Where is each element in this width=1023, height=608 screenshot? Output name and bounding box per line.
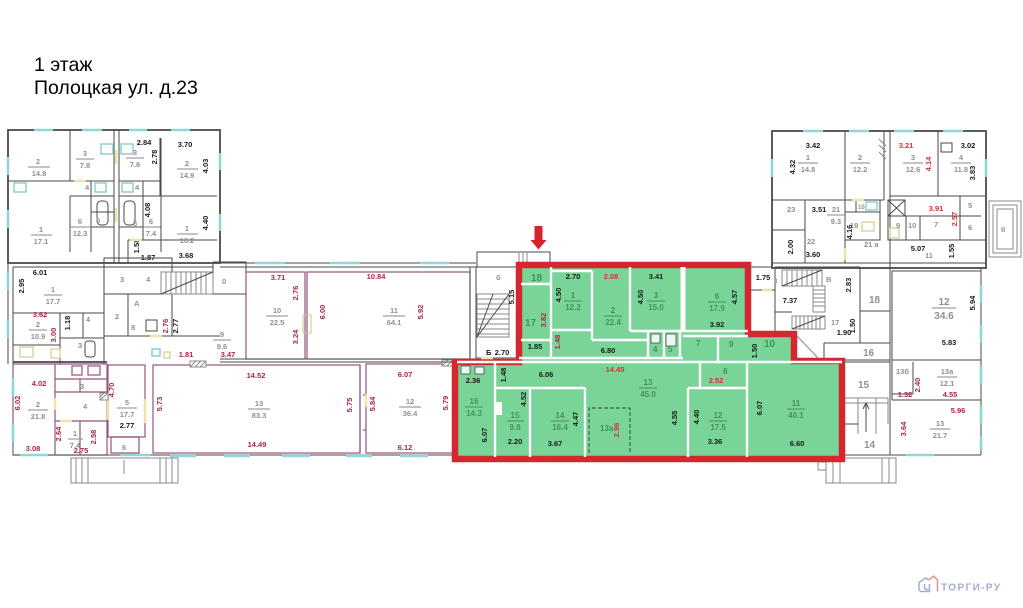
svg-text:4.57: 4.57 [730,290,739,305]
svg-text:10: 10 [858,205,865,211]
svg-text:2.96: 2.96 [612,423,621,438]
svg-text:4.50: 4.50 [636,290,645,305]
svg-text:2: 2 [858,153,862,162]
svg-text:5: 5 [133,219,137,228]
svg-text:2.20: 2.20 [508,437,523,446]
svg-text:8: 8 [131,323,135,332]
svg-text:14.49: 14.49 [248,440,267,449]
svg-text:13: 13 [255,399,263,408]
svg-text:12.2: 12.2 [565,303,581,312]
svg-text:1.48: 1.48 [499,368,508,383]
svg-text:2.77: 2.77 [120,421,135,430]
svg-text:5.96: 5.96 [951,406,966,415]
svg-text:2.83: 2.83 [844,278,853,293]
svg-text:6.80: 6.80 [601,346,616,355]
svg-text:10: 10 [273,306,281,315]
svg-text:А: А [134,299,140,308]
svg-text:3.02: 3.02 [961,141,976,150]
svg-text:2: 2 [115,312,119,321]
svg-text:15: 15 [511,411,520,420]
svg-text:3: 3 [83,149,87,158]
svg-text:2.08: 2.08 [604,272,619,281]
svg-text:2.70: 2.70 [495,348,510,357]
svg-text:6.07: 6.07 [480,428,489,443]
svg-text:22.5: 22.5 [270,318,285,327]
svg-text:5.84: 5.84 [368,396,377,411]
svg-text:15.0: 15.0 [648,303,664,312]
svg-text:4.55: 4.55 [943,390,958,399]
svg-text:2.95: 2.95 [17,279,26,294]
svg-text:64.1: 64.1 [387,318,402,327]
svg-text:1: 1 [51,285,55,294]
svg-text:12.6: 12.6 [906,165,921,174]
svg-text:2.36: 2.36 [466,376,481,385]
svg-text:2.76: 2.76 [291,286,300,301]
svg-text:14.8: 14.8 [801,165,816,174]
svg-text:40.1: 40.1 [788,411,804,420]
svg-text:12: 12 [714,411,723,420]
svg-text:4.14: 4.14 [924,156,933,171]
svg-text:83.3: 83.3 [252,411,267,420]
svg-text:3.70: 3.70 [178,140,193,149]
svg-text:22: 22 [807,237,815,246]
svg-text:5.73: 5.73 [155,397,164,412]
svg-text:2: 2 [36,400,40,409]
svg-text:2.77: 2.77 [171,319,180,334]
svg-text:3.42: 3.42 [806,141,821,150]
svg-text:16.4: 16.4 [552,423,568,432]
svg-text:5: 5 [968,201,972,210]
svg-text:4.50: 4.50 [554,288,563,303]
svg-text:7.37: 7.37 [783,296,798,305]
svg-text:3: 3 [120,275,124,284]
svg-text:14: 14 [556,411,565,420]
svg-text:1: 1 [39,225,43,234]
svg-text:1: 1 [806,153,810,162]
svg-text:8: 8 [723,367,728,376]
svg-text:21 а: 21 а [864,240,879,249]
svg-text:3.08: 3.08 [26,444,41,453]
svg-text:3.36: 3.36 [708,437,723,446]
svg-text:1.50: 1.50 [848,319,857,334]
svg-text:3.51: 3.51 [812,205,827,214]
svg-text:21: 21 [832,205,840,214]
svg-text:Полоцкая ул. д.23: Полоцкая ул. д.23 [34,77,198,99]
svg-text:1: 1 [73,429,77,438]
svg-text:3: 3 [911,153,915,162]
svg-text:3: 3 [654,291,659,300]
svg-text:2.78: 2.78 [150,150,159,165]
svg-text:9.3: 9.3 [831,217,841,226]
svg-text:1: 1 [185,224,189,233]
svg-text:11: 11 [792,399,801,408]
svg-text:3.41: 3.41 [649,272,664,281]
svg-text:1.18: 1.18 [63,316,72,331]
svg-text:17.5: 17.5 [710,423,726,432]
svg-text:7.8: 7.8 [80,161,90,170]
svg-text:12: 12 [938,297,950,308]
svg-text:2.00: 2.00 [786,240,795,255]
svg-text:4: 4 [653,345,658,354]
svg-text:3.62: 3.62 [33,310,48,319]
svg-text:14.52: 14.52 [247,371,266,380]
svg-text:3.60: 3.60 [806,250,821,259]
svg-text:2.76: 2.76 [161,319,170,334]
svg-text:12.3: 12.3 [73,229,88,238]
svg-text:16: 16 [470,397,479,406]
svg-text:3.92: 3.92 [710,320,725,329]
svg-text:22.4: 22.4 [605,318,621,327]
svg-text:2: 2 [185,159,189,168]
svg-text:10.9: 10.9 [31,332,46,341]
svg-text:4.47: 4.47 [571,412,580,427]
svg-text:6: 6 [122,443,126,452]
svg-text:13: 13 [936,419,944,428]
svg-text:2.75: 2.75 [74,446,89,455]
svg-text:5.07: 5.07 [911,244,926,253]
svg-text:10.84: 10.84 [367,272,387,281]
svg-text:6.01: 6.01 [33,268,48,277]
svg-text:4.32: 4.32 [788,160,797,175]
svg-text:Б: Б [486,348,492,357]
svg-text:2: 2 [36,320,40,329]
svg-text:11.8: 11.8 [954,165,968,174]
svg-text:16: 16 [863,348,875,359]
svg-text:4.55: 4.55 [670,411,679,426]
svg-text:2.84: 2.84 [137,138,152,147]
svg-text:7: 7 [696,339,701,348]
svg-text:10: 10 [908,221,916,230]
svg-text:18: 18 [869,295,881,306]
svg-text:12: 12 [406,397,414,406]
svg-text:5.94: 5.94 [968,295,977,310]
svg-text:4.03: 4.03 [201,159,210,174]
svg-text:6.07: 6.07 [755,401,764,416]
svg-text:1.81: 1.81 [179,350,194,359]
svg-text:6: 6 [149,217,153,226]
svg-text:7.4: 7.4 [146,229,157,238]
svg-text:3.71: 3.71 [271,273,286,282]
svg-text:2.52: 2.52 [709,376,724,385]
svg-text:II: II [1001,225,1005,234]
svg-text:3.24: 3.24 [291,329,300,344]
svg-text:3.21: 3.21 [899,141,914,150]
svg-text:5.92: 5.92 [416,305,425,320]
svg-text:6.12: 6.12 [398,443,413,452]
svg-text:4.16: 4.16 [845,225,854,240]
svg-text:9: 9 [896,221,900,230]
svg-text:7.6: 7.6 [130,160,140,169]
svg-text:17: 17 [525,318,537,329]
svg-text:7: 7 [934,220,938,229]
svg-text:В: В [826,275,832,284]
svg-text:4.52: 4.52 [519,392,528,407]
svg-text:5: 5 [125,398,129,407]
svg-text:3: 3 [133,148,137,157]
svg-text:2.57: 2.57 [950,212,959,227]
svg-text:36.4: 36.4 [403,409,418,418]
svg-text:14.8: 14.8 [32,169,47,178]
svg-text:2.58: 2.58 [89,430,98,445]
svg-text:6: 6 [968,223,972,232]
svg-text:0: 0 [222,277,226,286]
svg-text:17.1: 17.1 [34,237,49,246]
svg-text:1.85: 1.85 [528,342,543,351]
svg-text:б: б [496,273,501,282]
svg-text:10: 10 [764,339,776,350]
svg-text:13а: 13а [941,367,954,376]
svg-text:4.40: 4.40 [201,216,210,231]
svg-text:21.7: 21.7 [933,431,948,440]
svg-text:5: 5 [96,216,100,225]
svg-text:2.70: 2.70 [566,272,581,281]
svg-text:6.07: 6.07 [398,370,413,379]
svg-text:2: 2 [611,306,616,315]
svg-text:3.68: 3.68 [179,251,194,260]
svg-text:9: 9 [220,330,224,339]
svg-text:12.2: 12.2 [853,165,868,174]
svg-text:15: 15 [858,380,870,391]
svg-text:1.75: 1.75 [756,273,771,282]
svg-text:4.08: 4.08 [143,203,152,218]
svg-text:17: 17 [831,318,839,327]
svg-text:1: 1 [571,291,576,300]
svg-text:1.50: 1.50 [750,344,759,359]
svg-text:45.0: 45.0 [640,390,656,399]
svg-text:9: 9 [729,340,734,349]
svg-text:3.67: 3.67 [548,439,563,448]
svg-text:6.60: 6.60 [790,439,805,448]
svg-text:5.79: 5.79 [441,396,450,411]
svg-text:3.00: 3.00 [49,328,58,343]
svg-text:5.75: 5.75 [345,398,354,413]
svg-text:9.8: 9.8 [509,423,521,432]
svg-text:1.32: 1.32 [898,390,913,399]
svg-text:4.02: 4.02 [32,379,47,388]
svg-text:3.82: 3.82 [539,313,548,328]
svg-text:4.40: 4.40 [692,410,701,425]
svg-text:ТОРГИ-РУ: ТОРГИ-РУ [941,583,1001,594]
svg-text:1 этаж: 1 этаж [34,54,92,76]
svg-text:18: 18 [531,273,543,284]
svg-text:3: 3 [80,382,84,391]
svg-text:6: 6 [715,292,720,301]
svg-text:5.15: 5.15 [507,290,516,305]
svg-text:13: 13 [644,378,653,387]
svg-text:17.9: 17.9 [709,304,725,313]
svg-text:3: 3 [78,341,82,350]
svg-text:14: 14 [864,440,876,451]
svg-text:3.64: 3.64 [899,421,908,436]
svg-text:6.02: 6.02 [13,396,22,411]
svg-text:13б: 13б [896,367,909,376]
svg-text:6.06: 6.06 [539,370,554,379]
svg-text:34.6: 34.6 [934,311,954,322]
svg-text:16.2: 16.2 [180,236,195,245]
svg-text:2.64: 2.64 [54,426,63,441]
svg-text:1.48: 1.48 [553,335,562,350]
svg-text:14.9: 14.9 [180,171,195,180]
svg-text:5.83: 5.83 [942,338,957,347]
svg-text:12.1: 12.1 [940,379,955,388]
svg-text:21.8: 21.8 [31,412,46,421]
svg-text:6.00: 6.00 [318,305,327,320]
svg-text:2.40: 2.40 [913,378,922,393]
svg-text:17.7: 17.7 [120,410,135,419]
svg-text:17.7: 17.7 [46,297,61,306]
svg-text:11: 11 [390,306,398,315]
svg-text:5: 5 [668,345,673,354]
svg-text:14.3: 14.3 [466,409,482,418]
svg-text:3.83: 3.83 [968,166,977,181]
svg-text:3.47: 3.47 [221,350,236,359]
svg-text:6: 6 [78,217,82,226]
svg-text:23: 23 [787,205,795,214]
svg-text:14.45: 14.45 [606,365,625,374]
svg-text:3.91: 3.91 [929,204,944,213]
svg-text:11: 11 [925,251,933,260]
svg-text:1.55: 1.55 [947,244,956,259]
svg-text:2: 2 [36,157,40,166]
